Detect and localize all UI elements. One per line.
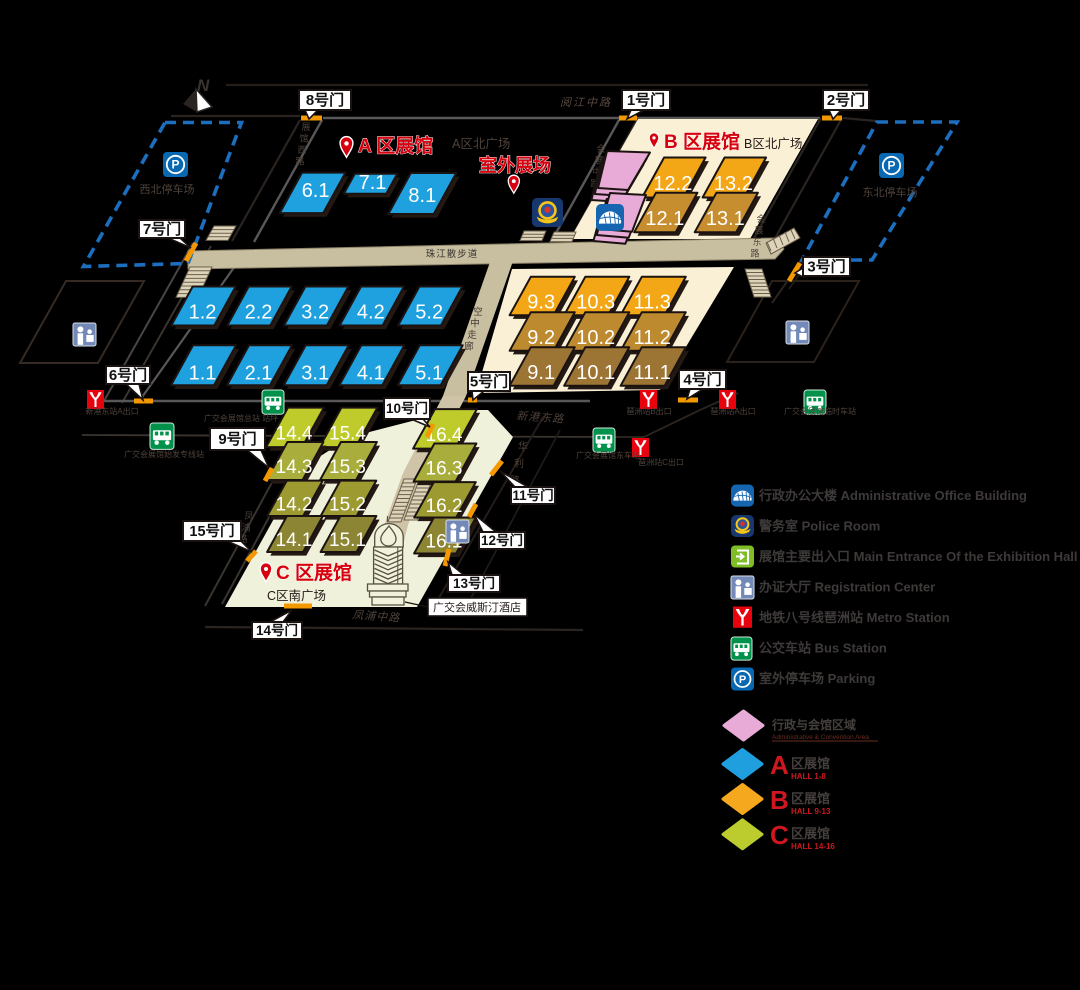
- svg-text:9.2: 9.2: [527, 327, 555, 349]
- svg-text:5号门: 5号门: [470, 372, 508, 390]
- svg-text:8.1: 8.1: [408, 185, 436, 207]
- svg-text:展: 展: [301, 122, 310, 132]
- svg-text:公交车站 Bus Station: 公交车站 Bus Station: [759, 641, 887, 656]
- svg-text:8号门: 8号门: [306, 91, 344, 109]
- svg-text:走: 走: [467, 330, 477, 341]
- svg-text:4.1: 4.1: [357, 363, 385, 385]
- svg-text:办证大厅 Registration Center: 办证大厅 Registration Center: [759, 580, 935, 595]
- svg-text:C 区展馆: C 区展馆: [276, 561, 352, 584]
- svg-text:5.1: 5.1: [415, 363, 443, 385]
- svg-text:东: 东: [752, 236, 761, 247]
- svg-text:B区北广场: B区北广场: [744, 137, 802, 151]
- svg-text:警务室 Police Room: 警务室 Police Room: [759, 519, 880, 534]
- svg-text:Administrative & Convention Ar: Administrative & Convention Area: [772, 734, 869, 741]
- svg-text:HALL 14-16: HALL 14-16: [791, 842, 835, 851]
- svg-text:9.1: 9.1: [527, 362, 555, 384]
- svg-text:馆: 馆: [299, 133, 308, 144]
- svg-text:西: 西: [297, 145, 306, 155]
- svg-text:路: 路: [750, 248, 759, 259]
- svg-text:区展馆: 区展馆: [791, 826, 830, 841]
- svg-text:行政办公大楼 Administrative Office B: 行政办公大楼 Administrative Office Building: [758, 488, 1027, 503]
- svg-text:15.1: 15.1: [329, 530, 366, 551]
- svg-text:16.2: 16.2: [426, 496, 463, 517]
- svg-text:11.2: 11.2: [633, 327, 670, 349]
- svg-text:1.2: 1.2: [189, 301, 217, 323]
- svg-text:空: 空: [473, 306, 483, 318]
- svg-text:9.3: 9.3: [527, 291, 555, 313]
- svg-text:阅江中路: 阅江中路: [560, 96, 612, 109]
- svg-text:6.1: 6.1: [302, 180, 330, 202]
- svg-text:2号门: 2号门: [827, 91, 865, 109]
- svg-text:利: 利: [514, 458, 524, 470]
- svg-text:东北停车场: 东北停车场: [863, 185, 918, 199]
- svg-text:11号门: 11号门: [512, 487, 553, 503]
- svg-text:C区南广场: C区南广场: [267, 588, 326, 603]
- svg-text:会: 会: [756, 213, 765, 224]
- svg-text:2.1: 2.1: [245, 363, 273, 385]
- svg-text:室外停车场 Parking: 室外停车场 Parking: [759, 671, 875, 686]
- svg-text:区展馆: 区展馆: [791, 791, 830, 806]
- svg-text:10.2: 10.2: [576, 327, 615, 349]
- svg-text:凤: 凤: [244, 511, 253, 521]
- svg-text:14.1: 14.1: [276, 530, 313, 551]
- svg-text:B 区展馆: B 区展馆: [664, 130, 740, 153]
- svg-text:7.1: 7.1: [359, 172, 387, 194]
- svg-text:中: 中: [470, 318, 480, 330]
- svg-text:11.1: 11.1: [633, 362, 670, 384]
- svg-text:珠江散步道: 珠江散步道: [426, 248, 479, 260]
- svg-text:广交会展馆临时车站: 广交会展馆临时车站: [784, 406, 856, 416]
- svg-text:廊: 廊: [464, 341, 474, 353]
- svg-text:C: C: [770, 820, 789, 850]
- svg-text:10.1: 10.1: [576, 362, 615, 384]
- svg-text:2.2: 2.2: [245, 301, 273, 323]
- svg-text:3.1: 3.1: [301, 363, 329, 385]
- svg-text:15.3: 15.3: [329, 457, 366, 478]
- svg-text:14.3: 14.3: [276, 457, 313, 478]
- svg-text:3号门: 3号门: [807, 257, 845, 275]
- svg-text:A: A: [770, 750, 789, 780]
- svg-text:HALL 9-13: HALL 9-13: [791, 807, 831, 816]
- svg-text:琶洲站A出口: 琶洲站A出口: [710, 406, 755, 416]
- svg-text:展馆主要出入口 Main Entrance Of the E: 展馆主要出入口 Main Entrance Of the Exhibition …: [759, 549, 1078, 564]
- svg-text:10.3: 10.3: [576, 291, 615, 313]
- svg-text:1.1: 1.1: [189, 363, 217, 385]
- svg-text:新港东站A出口: 新港东站A出口: [85, 406, 138, 416]
- svg-text:12.2: 12.2: [653, 173, 692, 195]
- svg-text:P: P: [739, 674, 746, 686]
- svg-text:5.2: 5.2: [415, 301, 443, 323]
- svg-text:A区北广场: A区北广场: [452, 137, 510, 151]
- svg-text:10号门: 10号门: [386, 400, 428, 416]
- svg-text:14.2: 14.2: [276, 494, 313, 515]
- svg-text:室外展场: 室外展场: [479, 155, 551, 176]
- svg-text:路: 路: [295, 156, 304, 167]
- svg-text:地铁八号线琶洲站 Metro Station: 地铁八号线琶洲站 Metro Station: [759, 610, 950, 625]
- svg-text:P: P: [171, 158, 179, 172]
- svg-text:琶洲站C出口: 琶洲站C出口: [638, 457, 684, 467]
- svg-text:西北停车场: 西北停车场: [140, 182, 195, 196]
- svg-text:4.2: 4.2: [357, 301, 385, 323]
- svg-text:12号门: 12号门: [481, 532, 523, 548]
- svg-text:展: 展: [754, 226, 763, 236]
- svg-text:15号门: 15号门: [189, 522, 234, 540]
- svg-text:6号门: 6号门: [109, 366, 147, 384]
- svg-text:广交会展馆总站 站坪: 广交会展馆总站 站坪: [204, 413, 278, 423]
- svg-text:13.1: 13.1: [706, 208, 745, 230]
- svg-text:13.2: 13.2: [714, 173, 753, 195]
- svg-text:9号门: 9号门: [218, 430, 256, 448]
- svg-text:区展馆: 区展馆: [791, 756, 830, 771]
- svg-text:HALL 1-8: HALL 1-8: [791, 772, 827, 781]
- svg-text:华: 华: [518, 440, 528, 453]
- svg-text:P: P: [887, 159, 895, 173]
- svg-text:行政与会馆区域: 行政与会馆区域: [771, 717, 856, 732]
- svg-text:4号门: 4号门: [683, 370, 721, 388]
- svg-text:B: B: [770, 785, 789, 815]
- svg-text:广交会展馆东车站: 广交会展馆东车站: [576, 450, 640, 460]
- svg-text:7号门: 7号门: [143, 220, 181, 238]
- svg-text:广交会展馆始发专线站: 广交会展馆始发专线站: [124, 449, 204, 459]
- svg-text:广交会威斯汀酒店: 广交会威斯汀酒店: [433, 600, 521, 614]
- svg-text:3.2: 3.2: [301, 301, 329, 323]
- svg-text:A 区展馆: A 区展馆: [358, 134, 433, 157]
- svg-text:13号门: 13号门: [453, 575, 495, 591]
- svg-text:12.1: 12.1: [645, 208, 684, 230]
- svg-text:15.2: 15.2: [329, 494, 366, 515]
- svg-text:11.3: 11.3: [633, 291, 670, 313]
- svg-text:14号门: 14号门: [256, 622, 298, 638]
- svg-text:会: 会: [596, 143, 605, 154]
- svg-text:1号门: 1号门: [627, 91, 665, 109]
- svg-text:浦: 浦: [241, 522, 250, 533]
- svg-text:16.3: 16.3: [426, 459, 463, 480]
- svg-text:琶洲站B出口: 琶洲站B出口: [626, 406, 671, 416]
